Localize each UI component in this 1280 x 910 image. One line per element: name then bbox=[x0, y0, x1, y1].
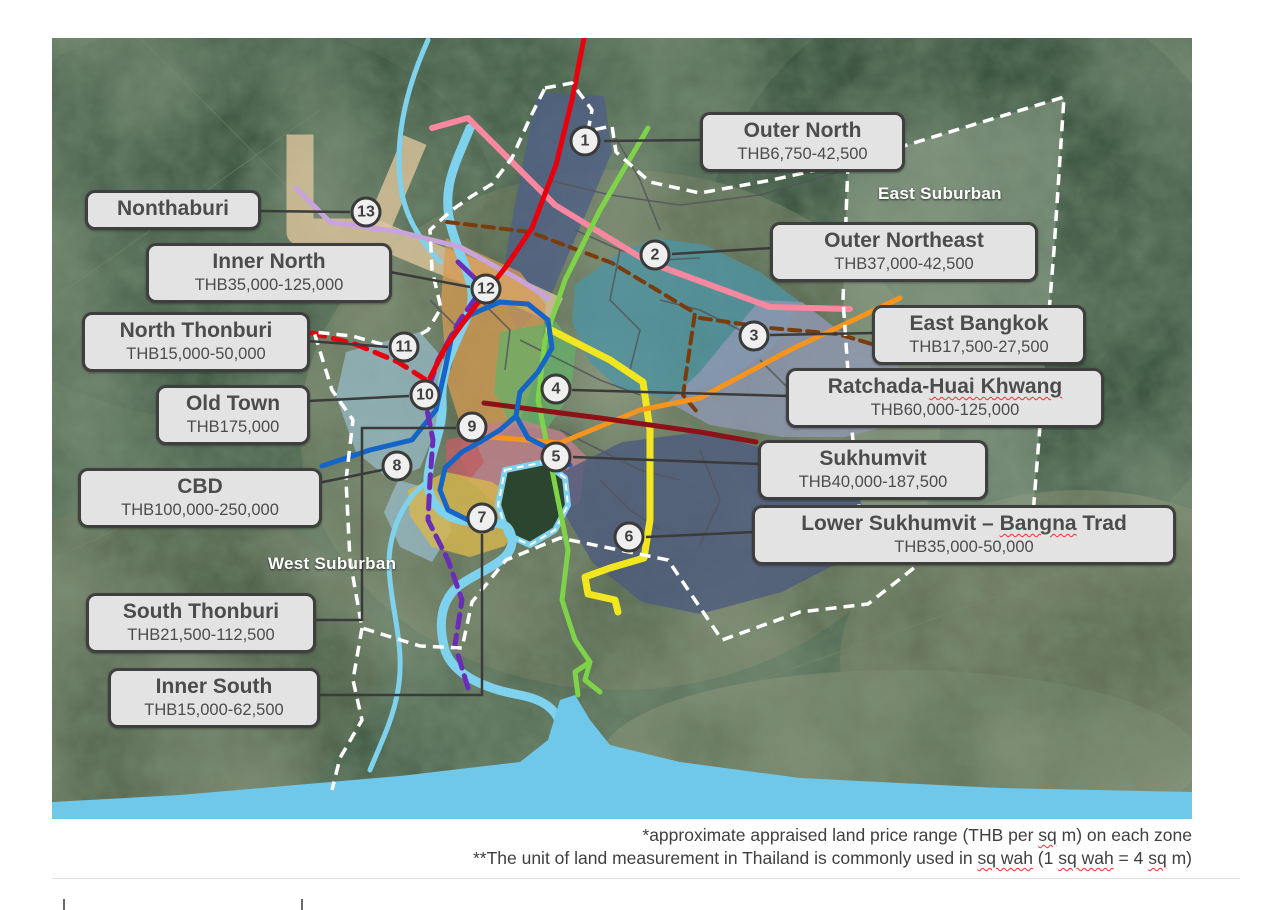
zone-label-title: South Thonburi bbox=[97, 599, 305, 625]
zone-label-title: Lower Sukhumvit – Bangna Trad bbox=[763, 511, 1165, 537]
divider-line bbox=[52, 878, 1240, 879]
zone-label-south-thonburi: South ThonburiTHB21,500-112,500 bbox=[86, 593, 316, 653]
zone-label-title-segment: Sukhumvit bbox=[819, 447, 926, 470]
region-label: West Suburban bbox=[268, 554, 396, 574]
zone-label-title-segment: South Thonburi bbox=[123, 600, 279, 623]
zone-label-inner-south: Inner SouthTHB15,000-62,500 bbox=[108, 668, 320, 728]
footnote-segment: (1 bbox=[1033, 848, 1058, 868]
zone-label-price: THB40,000-187,500 bbox=[769, 472, 977, 492]
table-border-tick bbox=[301, 899, 303, 910]
zone-label-price: THB15,000-62,500 bbox=[119, 700, 309, 720]
zone-label-price: THB17,500-27,500 bbox=[883, 337, 1075, 357]
bangkok-land-price-map-page: East SuburbanWest Suburban 1234567891011… bbox=[0, 0, 1280, 910]
zone-label-sukhumvit: SukhumvitTHB40,000-187,500 bbox=[758, 440, 988, 500]
zone-label-price: THB35,000-125,000 bbox=[157, 275, 381, 295]
zone-label-title-segment: Outer Northeast bbox=[824, 229, 984, 252]
footnote-segment: sq bbox=[1148, 848, 1166, 868]
zone-label-old-town: Old TownTHB175,000 bbox=[156, 385, 310, 445]
zone-label-price: THB175,000 bbox=[167, 417, 299, 437]
zone-label-title: North Thonburi bbox=[93, 318, 299, 344]
zone-label-price: THB37,000-42,500 bbox=[781, 254, 1027, 274]
zone-label-ratchada-huai-khwang: Ratchada-Huai KhwangTHB60,000-125,000 bbox=[786, 368, 1104, 428]
zone-label-title-segment: Lower Sukhumvit – bbox=[801, 512, 999, 535]
table-border-tick bbox=[63, 899, 65, 910]
zone-label-title-segment: Huai Khwang bbox=[929, 375, 1062, 398]
zone-label-title-segment: Nonthaburi bbox=[117, 197, 229, 220]
zone-label-title-segment: Outer North bbox=[744, 119, 862, 142]
zone-marker-7: 7 bbox=[467, 503, 498, 534]
zone-label-price: THB21,500-112,500 bbox=[97, 625, 305, 645]
footnote-segment: *approximate appraised land price range … bbox=[642, 825, 1038, 845]
zone-label-title: Ratchada-Huai Khwang bbox=[797, 374, 1093, 400]
zone-marker-11: 11 bbox=[389, 332, 420, 363]
zone-label-title-segment: CBD bbox=[177, 475, 223, 498]
footnote-segment: m) on each zone bbox=[1057, 825, 1192, 845]
zone-label-lower-sukhumvit-bangna-trad: Lower Sukhumvit – Bangna TradTHB35,000-5… bbox=[752, 505, 1176, 565]
zone-label-title: Outer Northeast bbox=[781, 228, 1027, 254]
zone-marker-8: 8 bbox=[382, 451, 413, 482]
zone-label-title-segment: North Thonburi bbox=[120, 319, 273, 342]
zone-marker-10: 10 bbox=[410, 380, 441, 411]
zone-label-title: Inner North bbox=[157, 249, 381, 275]
zone-label-title-segment: Inner North bbox=[212, 250, 325, 273]
zone-label-price: THB60,000-125,000 bbox=[797, 400, 1093, 420]
zone-marker-9: 9 bbox=[457, 412, 488, 443]
zone-marker-13: 13 bbox=[351, 197, 382, 228]
footnote-segment: sq wah bbox=[977, 848, 1032, 868]
zone-label-outer-northeast: Outer NortheastTHB37,000-42,500 bbox=[770, 222, 1038, 282]
zone-marker-6: 6 bbox=[614, 522, 645, 553]
zone-label-title: Inner South bbox=[119, 674, 309, 700]
zone-label-title: East Bangkok bbox=[883, 311, 1075, 337]
zone-label-title-segment: Ratchada- bbox=[828, 375, 930, 398]
footnote-segment: **The unit of land measurement in Thaila… bbox=[473, 848, 978, 868]
zone-label-inner-north: Inner NorthTHB35,000-125,000 bbox=[146, 243, 392, 303]
footnote-segment: sq bbox=[1038, 825, 1056, 845]
footnote-segment: sq wah bbox=[1058, 848, 1113, 868]
zone-label-price: THB100,000-250,000 bbox=[89, 500, 311, 520]
zone-label-cbd: CBDTHB100,000-250,000 bbox=[78, 468, 322, 528]
footnote-segment: m) bbox=[1167, 848, 1192, 868]
zone-label-nonthaburi: Nonthaburi bbox=[85, 190, 261, 230]
zone-label-title: Old Town bbox=[167, 391, 299, 417]
zone-label-title: Nonthaburi bbox=[96, 196, 250, 222]
zone-label-title-segment: Inner South bbox=[156, 675, 273, 698]
zone-label-price: THB35,000-50,000 bbox=[763, 537, 1165, 557]
zone-marker-1: 1 bbox=[570, 126, 601, 157]
zone-label-north-thonburi: North ThonburiTHB15,000-50,000 bbox=[82, 312, 310, 372]
zone-label-price: THB15,000-50,000 bbox=[93, 344, 299, 364]
footnote-segment: = 4 bbox=[1114, 848, 1149, 868]
zone-marker-4: 4 bbox=[541, 374, 572, 405]
region-label: East Suburban bbox=[878, 184, 1002, 204]
zone-label-title: CBD bbox=[89, 474, 311, 500]
zone-label-title-segment: Old Town bbox=[186, 392, 280, 415]
zone-label-title: Outer North bbox=[711, 118, 894, 144]
footnote-line: **The unit of land measurement in Thaila… bbox=[52, 847, 1192, 870]
footnotes: *approximate appraised land price range … bbox=[52, 824, 1192, 870]
zone-marker-2: 2 bbox=[640, 240, 671, 271]
zone-label-price: THB6,750-42,500 bbox=[711, 144, 894, 164]
zone-label-title-segment: Trad bbox=[1077, 512, 1127, 535]
footnote-line: *approximate appraised land price range … bbox=[52, 824, 1192, 847]
zone-label-title-segment: Bangna bbox=[1000, 512, 1077, 535]
zone-label-east-bangkok: East BangkokTHB17,500-27,500 bbox=[872, 305, 1086, 365]
zone-marker-12: 12 bbox=[471, 274, 502, 305]
zone-label-title: Sukhumvit bbox=[769, 446, 977, 472]
zone-marker-3: 3 bbox=[739, 321, 770, 352]
zone-label-title-segment: East Bangkok bbox=[910, 312, 1049, 335]
zone-marker-5: 5 bbox=[541, 442, 572, 473]
zone-label-outer-north: Outer NorthTHB6,750-42,500 bbox=[700, 112, 905, 172]
